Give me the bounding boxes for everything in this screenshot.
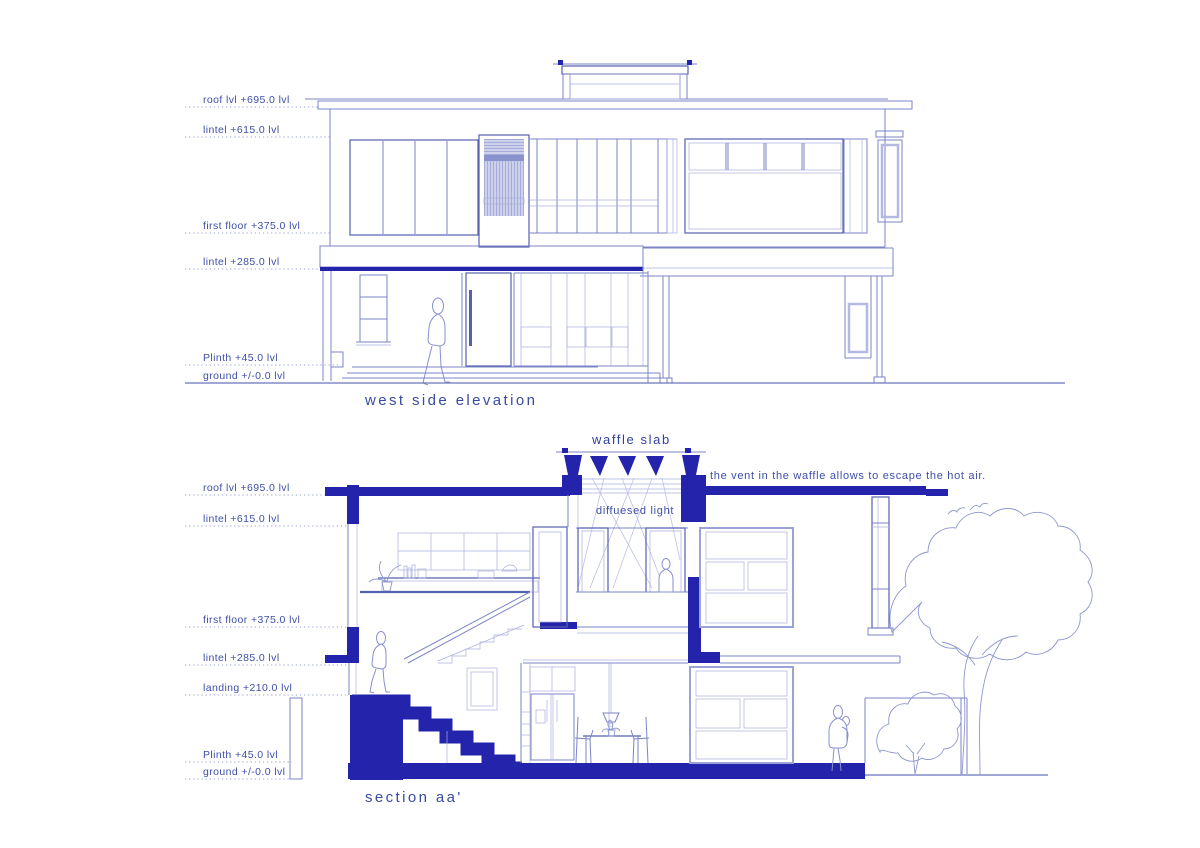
elevation-ground-floor xyxy=(323,271,885,385)
waffle-vent-triangle xyxy=(646,456,664,476)
refrigerator xyxy=(531,694,574,760)
elevation-louver-window xyxy=(350,140,478,235)
elevation-level-plinth: Plinth +45.0 lvl xyxy=(203,352,278,364)
section-kitchen xyxy=(521,660,688,763)
elevation-roof xyxy=(305,60,912,109)
section-level-lines xyxy=(185,495,348,779)
section-level-roof: roof lvl +695.0 lvl xyxy=(203,482,290,494)
shelf-items xyxy=(404,565,517,578)
section-tall-window xyxy=(868,497,893,635)
waffle-vent-triangle xyxy=(590,456,608,476)
section-left-wall-outline xyxy=(348,524,357,695)
section-terrace-person-figure xyxy=(829,706,850,772)
elevation-ground-glazing xyxy=(514,271,648,383)
section-garden xyxy=(865,503,1092,775)
section-ground-right-window xyxy=(690,656,900,763)
section-upper-living xyxy=(360,533,540,663)
section-upper-right-window xyxy=(700,528,793,627)
elevation-level-first-floor: first floor +375.0 lvl xyxy=(203,220,300,232)
section-center-door xyxy=(533,495,578,627)
right-slab-edge xyxy=(688,652,720,663)
elevation-level-ground: ground +/-0.0 lvl xyxy=(203,370,285,382)
potted-plant xyxy=(369,561,401,591)
west-elevation-drawing: roof lvl +695.0 lvl lintel +615.0 lvl fi… xyxy=(185,60,1065,409)
section-compound-wall xyxy=(290,698,302,779)
door-threshold-slab xyxy=(540,622,577,629)
section-level-lintel-upper: lintel +615.0 lvl xyxy=(203,513,280,525)
elevation-floor-slab-band xyxy=(320,246,893,276)
section-level-ground: ground +/-0.0 lvl xyxy=(203,766,285,778)
elevation-glazing xyxy=(530,139,677,233)
section-landing-person-figure xyxy=(370,632,390,694)
elevation-right-window-band xyxy=(685,131,903,233)
section-level-landing: landing +210.0 lvl xyxy=(203,682,292,694)
picture-frame xyxy=(467,668,497,710)
left-wall-top xyxy=(347,485,359,524)
section-level-plinth: Plinth +45.0 lvl xyxy=(203,749,278,761)
architectural-drawing-sheet: roof lvl +695.0 lvl lintel +615.0 lvl fi… xyxy=(0,0,1200,848)
elevation-person-figure xyxy=(423,298,450,385)
roof-slab-right xyxy=(700,486,926,495)
section-level-first-floor: first floor +375.0 lvl xyxy=(203,614,300,626)
section-title: section aa' xyxy=(365,789,463,806)
elevation-porch-columns xyxy=(660,276,885,383)
elevation-upper-wall xyxy=(330,109,885,247)
small-tree xyxy=(877,692,962,774)
elevation-stair-tower xyxy=(479,135,529,247)
elevation-level-lintel-lower: lintel +285.0 lvl xyxy=(203,256,280,268)
elevation-level-lintel-upper: lintel +615.0 lvl xyxy=(203,124,280,136)
waffle-vent-triangle xyxy=(618,456,636,476)
chair xyxy=(575,717,593,763)
upper-cabinet xyxy=(530,667,575,691)
left-slab-projection xyxy=(325,655,347,663)
ground-slab xyxy=(348,763,865,779)
elevation-side-window xyxy=(360,275,387,342)
elevation-level-roof: roof lvl +695.0 lvl xyxy=(203,94,290,106)
elevation-level-lines xyxy=(185,107,340,365)
diffused-light-label: diffuesed light xyxy=(596,505,674,517)
section-level-lintel-lower: lintel +285.0 lvl xyxy=(203,652,280,664)
elevation-title: west side elevation xyxy=(364,392,537,409)
elevation-entry-steps xyxy=(342,367,667,383)
section-drawing: roof lvl +695.0 lvl lintel +615.0 lvl fi… xyxy=(185,432,1092,806)
door-handle xyxy=(469,290,472,346)
large-tree xyxy=(890,509,1092,776)
vent-annotation: the vent in the waffle allows to escape … xyxy=(710,470,986,482)
elevation-entrance-door xyxy=(462,273,514,366)
pendant-lamp xyxy=(603,663,619,727)
chair xyxy=(631,717,649,763)
left-wall-mid xyxy=(347,627,359,663)
roof-slab-left xyxy=(325,487,570,496)
waffle-slab-label: waffle slab xyxy=(591,432,671,447)
section-upper-person-figure xyxy=(659,559,673,593)
